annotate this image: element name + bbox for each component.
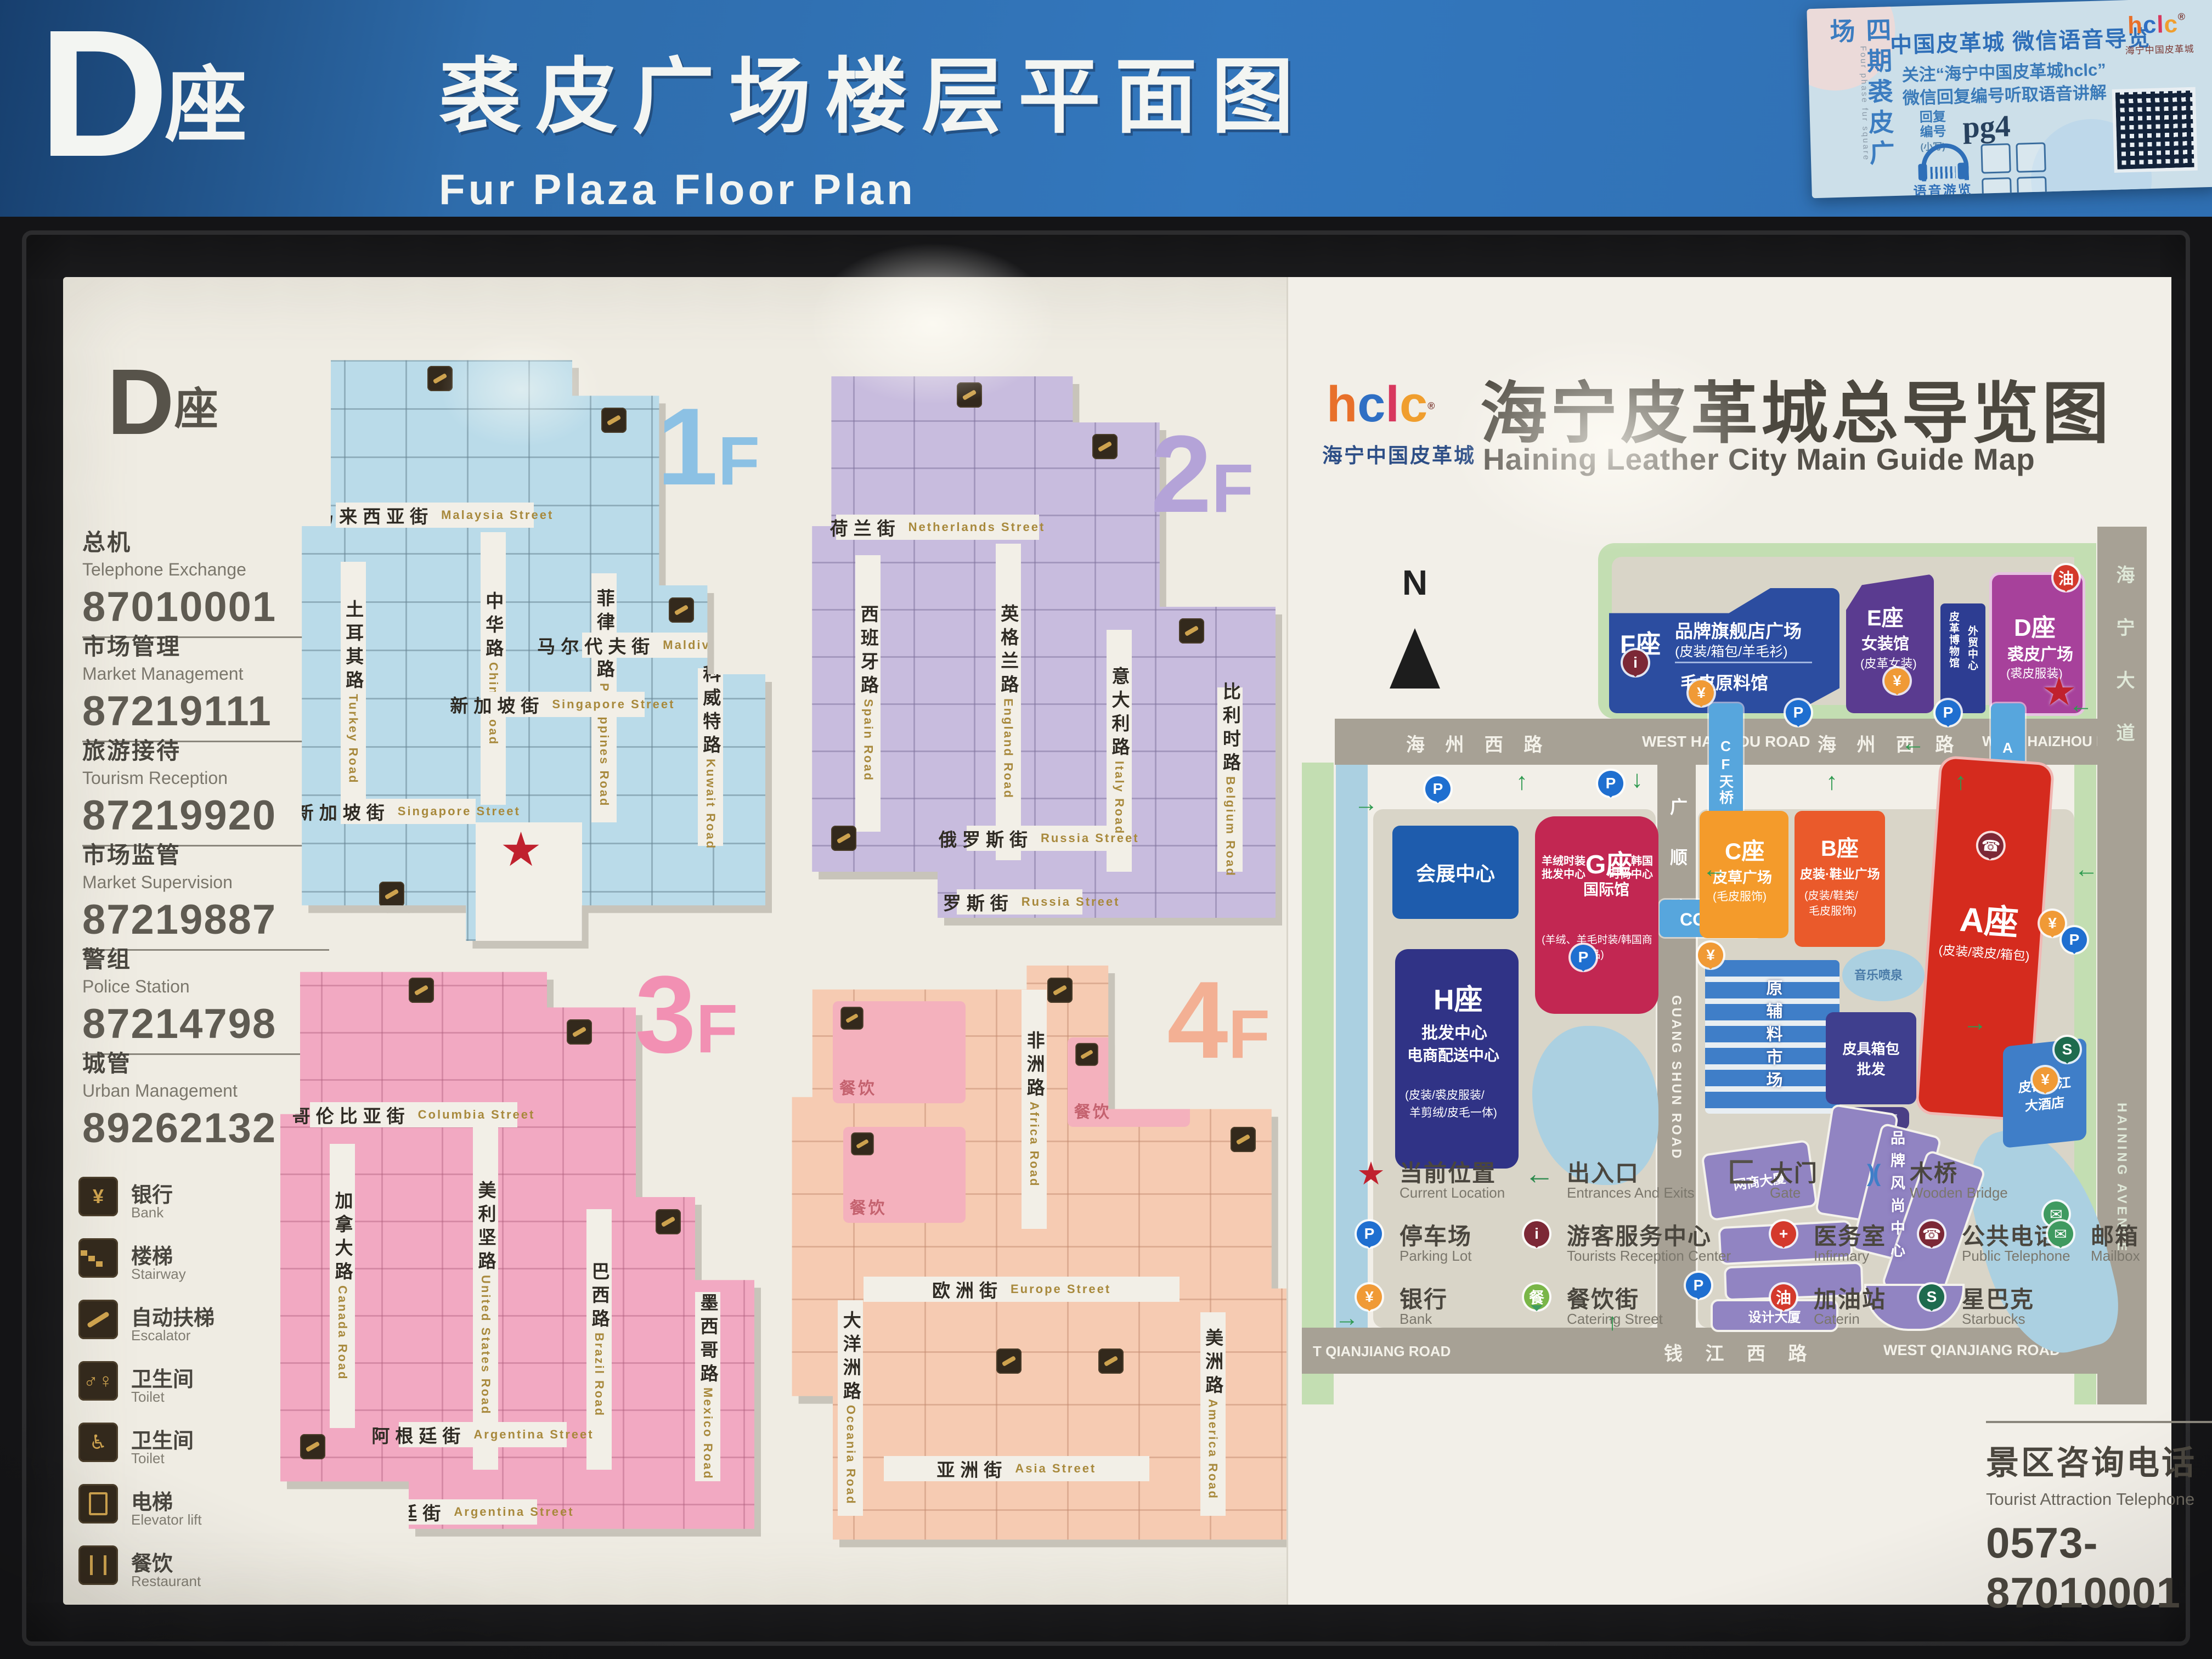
hclc-logo: hclc® xyxy=(1327,376,1435,433)
street-argentina-1: 阿根廷街 Argentina Street xyxy=(399,1422,567,1447)
parking-pin: P xyxy=(1936,700,1961,725)
facility-chip xyxy=(1047,978,1073,1003)
street-mexico: 墨西哥路 Mexico Road xyxy=(695,1292,720,1482)
hclc-logo-subtitle: 海宁中国皮革城 xyxy=(2125,41,2194,57)
facility-chip xyxy=(1098,1348,1124,1374)
bank-icon: ¥ xyxy=(1357,1284,1382,1310)
building-h: H座 批发中心 电商配送中心 (皮装/裘皮服装/ 羊剪绒/皮毛一体) xyxy=(1395,949,1519,1169)
entrance-arrow: ← xyxy=(1702,856,1726,883)
floor-plan-2f: 荷兰街 Netherlands Street 西班牙路 Spain Road 英… xyxy=(793,365,1276,941)
catering-icon: 餐 xyxy=(1524,1284,1549,1310)
facility-chip xyxy=(427,366,453,391)
telephone-icon: ☎ xyxy=(1919,1221,1944,1246)
entrance-arrow: ↑ xyxy=(1826,768,1838,795)
restaurant-icon xyxy=(78,1545,118,1585)
building-letter: D xyxy=(38,0,165,194)
facility-chip xyxy=(996,1348,1022,1374)
river-left xyxy=(1336,763,1368,1366)
street-africa: 非洲路 Africa Road xyxy=(1022,990,1047,1229)
elevator-icon xyxy=(78,1484,118,1523)
street-spain: 西班牙路 Spain Road xyxy=(855,555,881,832)
legend-restaurant: 餐饮 Restaurant xyxy=(78,1545,309,1602)
legend-parking: P 停车场 Parking Lot xyxy=(1357,1218,1521,1273)
street-maldives: 马尔代夫街 Maldives Street xyxy=(582,633,732,658)
facility-chip xyxy=(669,597,694,623)
legend-entrances: ← 出入口 Entrances And Exits xyxy=(1524,1155,1689,1210)
restaurant-chip xyxy=(1075,1043,1098,1065)
facility-chip xyxy=(567,1019,592,1045)
entrance-arrow: ← xyxy=(2069,691,2093,719)
hclc-logo-subtitle: 海宁中国皮革城 xyxy=(1322,439,1476,469)
sign-title-en: Fur Plaza Floor Plan xyxy=(439,165,1308,215)
restaurant-chip xyxy=(840,1007,863,1030)
bank-pin: ¥ xyxy=(1884,668,1910,693)
stairway-icon xyxy=(78,1238,118,1278)
legend-mailbox: ✉ 邮箱 Mailbox xyxy=(2048,1218,2158,1273)
floor-plan-3f: 哥伦比亚街 Columbia Street 加拿大路 Canada Road 美… xyxy=(261,960,754,1553)
parking-pin: P xyxy=(1686,1273,1711,1298)
facility-chip xyxy=(1092,434,1118,459)
bank-pin: ¥ xyxy=(2040,911,2065,936)
service-icon xyxy=(1980,143,2011,173)
parking-pin: P xyxy=(1425,776,1451,802)
wooden-bridge-icon: )( xyxy=(1867,1158,1878,1189)
legend-starbucks: S 星巴克 Starbucks xyxy=(1919,1281,2084,1336)
food-zone-1: 餐饮 xyxy=(833,1001,966,1103)
guide-map-title-en: Haining Leather City Main Guide Map xyxy=(1483,442,2035,477)
entrance-arrow: → xyxy=(1335,1305,1359,1332)
floor-label-3f: 3F xyxy=(635,960,738,1070)
building-label: D座 xyxy=(38,0,247,198)
gas-station-icon: 油 xyxy=(1771,1284,1796,1310)
board-building-label: D座 xyxy=(107,348,218,456)
hotline-number: 0573-87010001 xyxy=(1986,1518,2212,1618)
street-united-states: 美利坚路 United States Road xyxy=(473,1126,498,1469)
parking-icon: P xyxy=(1357,1221,1382,1246)
legend-catering-street: 餐 餐饮街 Catering Street xyxy=(1524,1281,1689,1336)
building-e: E座 女装馆 (皮革女装) xyxy=(1846,574,1934,713)
legend-infirmary: + 医务室 Infirmary xyxy=(1771,1218,1936,1273)
qr-code xyxy=(2115,91,2194,170)
entrance-arrow: ← xyxy=(2074,856,2098,883)
street-russia-1: 俄罗斯街 Russia Street xyxy=(967,826,1111,851)
gate-icon: 匚 xyxy=(1727,1158,1756,1189)
legend-tourist-center: i 游客服务中心 Tourists Reception Center xyxy=(1524,1218,1754,1273)
entrance-arrow: ↑ xyxy=(1516,768,1528,795)
building-b: B座 皮装·鞋业广场 (皮装/鞋类/ 毛皮服饰) xyxy=(1795,811,1885,947)
entrance-arrow: ↓ xyxy=(1631,766,1643,793)
building-g: 羊绒时装 批发中心 G座 国际馆 韩国 时尚中心 (羊绒、羊毛时装/韩国商品) xyxy=(1535,816,1658,1014)
floor-label-2f: 2F xyxy=(1150,420,1254,529)
telephone-pin: ☎ xyxy=(1977,832,2004,859)
facility-chip xyxy=(379,882,404,907)
street-kuwait: 科威特路 Kuwait Road xyxy=(698,668,723,846)
floor-label-4f: 4F xyxy=(1167,966,1270,1075)
facility-chip xyxy=(601,408,627,433)
floor-label-1f: 1F xyxy=(657,392,760,502)
street-singapore-1: 新加坡街 Singapore Street xyxy=(481,692,645,717)
info-icon: i xyxy=(1524,1221,1549,1246)
sign-title: 裘皮广场楼层平面图 Fur Plaza Floor Plan xyxy=(439,30,1308,215)
street-belgium: 比利时路 Belgium Road xyxy=(1217,687,1243,872)
fountain-lake: 音乐喷泉 xyxy=(1842,949,1925,1001)
facility-chip xyxy=(656,1209,681,1234)
legend-wooden-bridge: )( 木桥 Wooden Bridge xyxy=(1867,1155,2032,1210)
street-malaysia: 马来西亚街 Malaysia Street xyxy=(336,503,534,528)
facility-chip xyxy=(300,1434,325,1459)
building-exhibition-center: 会展中心 xyxy=(1392,826,1519,919)
wechat-audio-guide-card: 四期裘皮广场 Four phase fur square 中国皮革城 微信语音导… xyxy=(1807,0,2212,198)
fur-plaza-sign-photo: D座 裘皮广场楼层平面图 Fur Plaza Floor Plan 四期裘皮广场… xyxy=(0,0,2212,1659)
starbucks-pin: S xyxy=(2055,1037,2080,1062)
bank-pin: ¥ xyxy=(1698,943,1723,968)
toilet-icon: ♂♀ xyxy=(78,1361,118,1401)
service-icon xyxy=(2017,176,2047,198)
infirmary-icon: + xyxy=(1771,1221,1796,1246)
street-china: 中华路 China Road xyxy=(481,532,506,805)
entrance-arrow: → xyxy=(1963,1009,1987,1037)
facility-chip xyxy=(957,382,982,408)
building-museum: 皮革博物馆 外贸中心 xyxy=(1940,603,1985,713)
current-location-star: ★ xyxy=(500,822,542,877)
accessible-toilet-icon: ♿ xyxy=(78,1423,118,1462)
street-singapore-2: 新加坡街 Singapore Street xyxy=(341,799,476,824)
street-argentina-2: 阿根廷街 Argentina Street xyxy=(389,1499,537,1525)
street-america: 美洲路 America Road xyxy=(1200,1312,1226,1516)
sign-board: D座 总机 Telephone Exchange 87010001 市场管理 M… xyxy=(63,277,2170,1605)
parking-pin: P xyxy=(2062,927,2087,952)
restaurant-chip xyxy=(851,1133,873,1155)
starbucks-icon: S xyxy=(1919,1284,1944,1310)
legend-gas-station: 油 加油站 Caterin xyxy=(1771,1281,1936,1336)
mailbox-icon: ✉ xyxy=(2048,1221,2073,1246)
food-zone-2: 餐饮 xyxy=(843,1127,966,1222)
parking-pin: P xyxy=(1786,700,1811,725)
facility-chip xyxy=(1179,618,1204,644)
street-oceania: 大洋洲路 Oceania Road xyxy=(838,1300,863,1515)
service-icon xyxy=(1982,177,2012,198)
building-suffix: 座 xyxy=(165,59,247,151)
headphone-icon xyxy=(1917,143,1967,180)
parking-pin: P xyxy=(1571,945,1596,970)
legend-bank: ¥ 银行 Bank xyxy=(1357,1281,1521,1336)
street-turkey: 土耳其路 Turkey Road xyxy=(341,562,366,822)
bank-pin: ¥ xyxy=(1689,680,1714,706)
reply-code: pg4 xyxy=(1962,109,2011,145)
bank-icon: ¥ xyxy=(78,1177,118,1216)
bank-pin: ¥ xyxy=(2033,1067,2058,1092)
audio-tour-label: 语音游览 xyxy=(1913,179,1973,198)
card-line2: 微信回复编号听取语音讲解 xyxy=(1902,78,2107,109)
entrance-arrow: ↑ xyxy=(1955,768,1967,795)
street-columbia: 哥伦比亚街 Columbia Street xyxy=(310,1102,517,1127)
legend-current-location: ★ 当前位置 Current Location xyxy=(1357,1155,1521,1210)
arrow-icon: ← xyxy=(1524,1158,1555,1189)
info-pin: i xyxy=(1623,650,1648,675)
building-bags-wholesale: 皮具箱包批发 xyxy=(1826,1012,1916,1104)
mini-service-icons xyxy=(1980,142,2053,198)
escalator-icon xyxy=(78,1300,118,1339)
park-left xyxy=(1302,763,1334,1404)
street-russia-2: 俄罗斯街 Russia Street xyxy=(957,889,1082,915)
sign-header: D座 裘皮广场楼层平面图 Fur Plaza Floor Plan 四期裘皮广场… xyxy=(0,0,2212,217)
street-canada: 加拿大路 Canada Road xyxy=(330,1144,355,1428)
parking-pin: P xyxy=(1598,771,1623,796)
street-europe: 欧洲街 Europe Street xyxy=(864,1277,1180,1302)
facility-chip xyxy=(831,826,856,851)
guide-map-panel: hclc® 海宁中国皮革城 海宁皮革城总导览图 Haining Leather … xyxy=(1286,277,2171,1605)
facility-chip xyxy=(409,978,434,1003)
entrance-arrow: → xyxy=(1354,790,1378,817)
floor-plan-4f: 餐饮 餐饮 餐饮 非洲路 Africa Road 欧 xyxy=(782,966,1292,1564)
street-netherlands: 荷兰街 Netherlands Street xyxy=(836,515,1039,540)
floor-plan-1f: 马来西亚街 Malaysia Street 土耳其路 Turkey Road 中… xyxy=(283,348,765,941)
gas-station-pin: 油 xyxy=(2053,565,2079,590)
street-asia: 亚洲街 Asia Street xyxy=(884,1456,1149,1481)
entrance-arrow: ← xyxy=(1901,730,1925,757)
street-england: 英格兰路 England Road xyxy=(996,544,1021,861)
card-title: 中国皮革城 微信语音导览 xyxy=(1889,20,2151,59)
sign-title-zh: 裘皮广场楼层平面图 xyxy=(439,30,1308,149)
star-icon: ★ xyxy=(1357,1158,1385,1190)
building-materials-market: 原辅料市场 xyxy=(1705,960,1839,1114)
facility-chip xyxy=(1231,1127,1256,1152)
hclc-logo: hclc® xyxy=(2127,10,2186,39)
service-icon xyxy=(2016,142,2046,172)
tourist-hotline: 景区咨询电话 Tourist Attraction Telephone 0573… xyxy=(1986,1421,2212,1618)
